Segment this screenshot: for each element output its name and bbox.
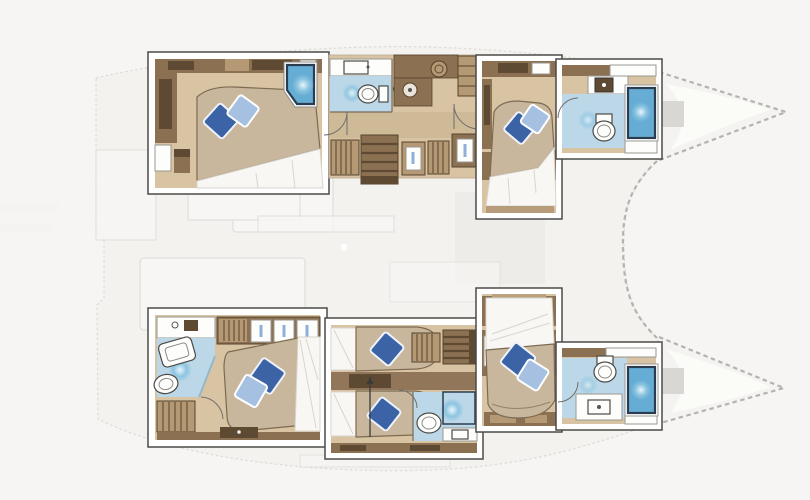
- floorplan-image: [0, 0, 810, 500]
- bathroom-lower-forward: [556, 342, 662, 430]
- cabin-upper-forward: [476, 55, 562, 219]
- stairs-icon: [361, 135, 398, 184]
- faded-fitting: [341, 244, 348, 251]
- locker: [331, 140, 359, 175]
- shower-icon: [625, 364, 658, 416]
- toilet-icon: [593, 114, 615, 141]
- burner-icon: [431, 61, 447, 77]
- sink-icon: [184, 320, 198, 331]
- cabin-lower-forward: [476, 288, 562, 432]
- wardrobe: [412, 333, 440, 362]
- cabins-lower-mid-singles: [325, 318, 483, 459]
- faded-bench: [258, 216, 394, 232]
- double-bed: [486, 298, 555, 418]
- toilet-icon: [594, 356, 616, 382]
- faded-stern-locker: [96, 150, 156, 240]
- sink-icon: [452, 430, 468, 439]
- toilet-icon: [358, 85, 388, 103]
- cabin-door: [155, 145, 171, 171]
- double-bed: [486, 101, 556, 206]
- toilet-icon: [417, 413, 441, 433]
- dock-stripe: [0, 224, 52, 233]
- footboard: [486, 206, 554, 213]
- stairs-icon: [443, 330, 475, 364]
- bathroom-upper-forward: [556, 59, 662, 159]
- dock-stripe: [0, 203, 58, 212]
- cabin-lower-aft-master: [148, 308, 327, 447]
- upper-corridor-galley: [324, 55, 480, 184]
- cabin-upper-aft: [148, 52, 329, 194]
- sink-icon: [344, 61, 368, 74]
- shower-icon: [625, 85, 658, 141]
- catamaran-floorplan: [0, 0, 810, 500]
- small-bathroom: [413, 392, 477, 441]
- double-bed: [224, 337, 320, 431]
